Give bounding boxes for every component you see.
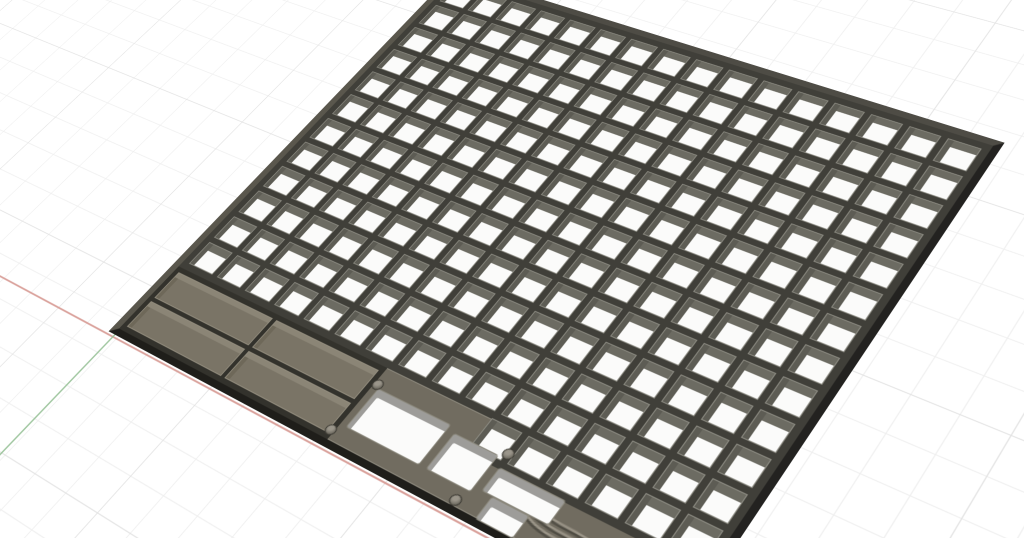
grid-hole (771, 298, 819, 335)
grid-hole (695, 479, 747, 523)
grid-hole (576, 424, 625, 464)
grid-hole (726, 361, 775, 400)
grid-hole (719, 445, 770, 487)
grid-hole (530, 240, 574, 273)
viewport-3d[interactable] (0, 0, 1024, 538)
grid-hole (876, 154, 922, 186)
grid-hole (854, 253, 902, 288)
grid-hole (599, 268, 645, 302)
grid-hole (628, 73, 669, 100)
grid-hole (514, 66, 554, 93)
grid-hole (708, 132, 752, 162)
grid-hole (649, 328, 697, 365)
grid-hole (502, 389, 550, 427)
grid-hole (473, 255, 517, 288)
grid-hole (497, 227, 541, 259)
grid-hole (625, 359, 673, 397)
grid-hole (563, 374, 611, 412)
grid-hole (723, 170, 768, 201)
grid-hole (565, 53, 605, 79)
grid-hole (895, 127, 940, 158)
grid-hole (622, 240, 667, 273)
grid-hole (780, 156, 825, 187)
grid-hole (654, 460, 705, 502)
grid-hole (648, 50, 689, 77)
grid-hole (639, 408, 689, 448)
grid-hole (895, 195, 942, 228)
grid-hole (616, 40, 656, 66)
grid-hole (793, 268, 841, 303)
grid-hole (433, 357, 479, 394)
grid-hole (523, 100, 564, 128)
grid-hole (467, 373, 514, 411)
grid-hole (701, 197, 746, 229)
grid-hole (635, 283, 682, 318)
grid-hole (754, 253, 801, 288)
grid-hole (820, 103, 864, 132)
grid-hole (857, 115, 902, 145)
grid-hole (743, 411, 794, 452)
grid-hole (614, 442, 664, 483)
grid-hole (510, 162, 552, 192)
pcb-cutout-large (347, 389, 450, 464)
grid-hole (759, 183, 804, 215)
grid-hole (532, 136, 574, 165)
grid-hole (458, 327, 504, 363)
grid-hole (934, 139, 980, 170)
grid-hole (784, 92, 827, 121)
grid-hole (542, 174, 585, 204)
grid-hole (678, 426, 728, 467)
grid-hole (555, 20, 594, 45)
grid-hole (817, 169, 863, 201)
grid-hole (482, 297, 527, 332)
grid-hole (856, 181, 902, 214)
grid-hole (875, 223, 923, 257)
grid-hole (535, 43, 575, 69)
grid-hole (681, 60, 723, 87)
grid-hole (663, 376, 712, 415)
grid-hole (710, 313, 758, 350)
grid-hole (586, 122, 628, 151)
grid-hole (744, 144, 788, 174)
grid-hole (611, 313, 658, 349)
grid-hole (553, 213, 597, 245)
grid-hole (527, 358, 574, 395)
grid-hole (607, 98, 649, 126)
grid-hole (479, 150, 521, 179)
grid-hole (538, 406, 587, 445)
grid-hole (729, 106, 772, 135)
grid-hole (687, 344, 736, 382)
grid-hole (554, 111, 596, 139)
grid-hole (575, 87, 616, 115)
grid-hole (425, 312, 470, 347)
grid-hole (776, 224, 823, 258)
grid-hole (596, 63, 637, 90)
grid-hole (797, 196, 843, 229)
grid-hole (619, 134, 662, 163)
grid-hole (601, 391, 650, 430)
grid-hole (800, 129, 844, 159)
grid-hole (749, 81, 792, 109)
grid-hole (575, 297, 621, 332)
grid-hole (644, 212, 689, 244)
grid-hole (674, 120, 717, 149)
grid-hole (516, 312, 562, 347)
grid-hole (465, 214, 508, 245)
grid-hole (488, 187, 531, 218)
grid-hole (811, 314, 860, 351)
grid-hole (835, 210, 882, 243)
grid-hole (399, 341, 445, 377)
grid-hole (915, 167, 962, 199)
grid-hole (694, 268, 741, 303)
grid-hole (597, 160, 640, 190)
grid-hole (587, 226, 632, 259)
grid-hole (653, 146, 696, 176)
grid-hole (764, 118, 808, 148)
grid-hole (585, 30, 625, 56)
grid-hole (833, 283, 882, 319)
grid-hole (680, 225, 726, 258)
grid-hole (666, 185, 710, 217)
grid-hole (506, 268, 551, 302)
grid-hole (588, 343, 636, 380)
grid-hole (631, 172, 675, 203)
grid-hole (837, 142, 882, 173)
grid-hole (520, 200, 563, 231)
grid-hole (540, 283, 586, 317)
grid-hole (815, 238, 862, 272)
grid-hole (449, 283, 494, 317)
grid-hole (640, 109, 682, 138)
grid-hole (564, 148, 606, 178)
grid-hole (749, 329, 798, 367)
grid-hole (661, 84, 703, 112)
grid-hole (738, 211, 784, 244)
grid-hole (732, 283, 780, 319)
grid-hole (714, 70, 756, 98)
grid-hole (702, 393, 752, 433)
grid-hole (544, 76, 585, 103)
grid-hole (789, 345, 839, 384)
grid-hole (694, 95, 736, 123)
grid-hole (658, 254, 704, 288)
grid-hole (552, 327, 599, 363)
grid-hole (492, 342, 539, 379)
grid-hole (672, 298, 719, 334)
grid-hole (501, 125, 542, 153)
grid-hole (564, 254, 609, 288)
grid-hole (766, 378, 816, 418)
grid-hole (575, 186, 619, 217)
grid-hole (441, 241, 485, 273)
grid-hole (687, 158, 731, 189)
grid-hole (609, 199, 653, 231)
grid-hole (716, 239, 762, 273)
